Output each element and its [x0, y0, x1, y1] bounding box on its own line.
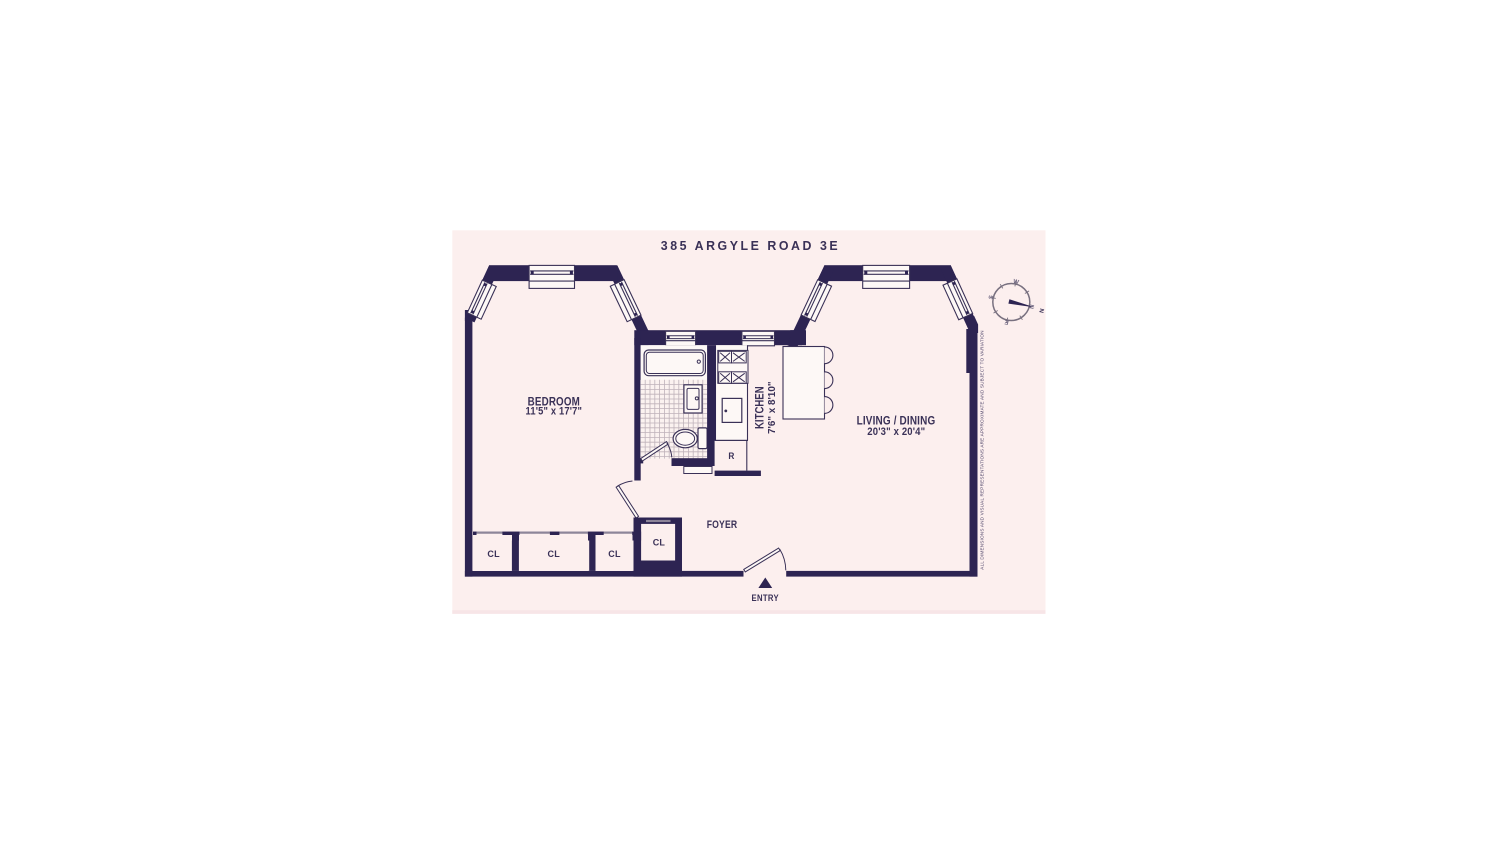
svg-text:ALL DIMENSIONS AND VISUAL REPR: ALL DIMENSIONS AND VISUAL REPRESENTATION…	[980, 330, 985, 569]
svg-text:ENTRY: ENTRY	[752, 592, 779, 603]
svg-text:7'6" x 8'10": 7'6" x 8'10"	[767, 381, 778, 434]
svg-text:KITCHEN: KITCHEN	[754, 386, 767, 429]
svg-text:20'3" x 20'4": 20'3" x 20'4"	[867, 427, 925, 439]
svg-text:11'5" x 17'7": 11'5" x 17'7"	[526, 406, 583, 418]
svg-text:CL: CL	[547, 549, 560, 559]
svg-text:FOYER: FOYER	[707, 519, 738, 531]
svg-text:R: R	[728, 450, 735, 461]
svg-text:CL: CL	[487, 549, 500, 559]
svg-text:CL: CL	[653, 538, 666, 548]
svg-text:385 ARGYLE ROAD 3E: 385 ARGYLE ROAD 3E	[661, 237, 840, 253]
svg-text:CL: CL	[608, 549, 621, 559]
